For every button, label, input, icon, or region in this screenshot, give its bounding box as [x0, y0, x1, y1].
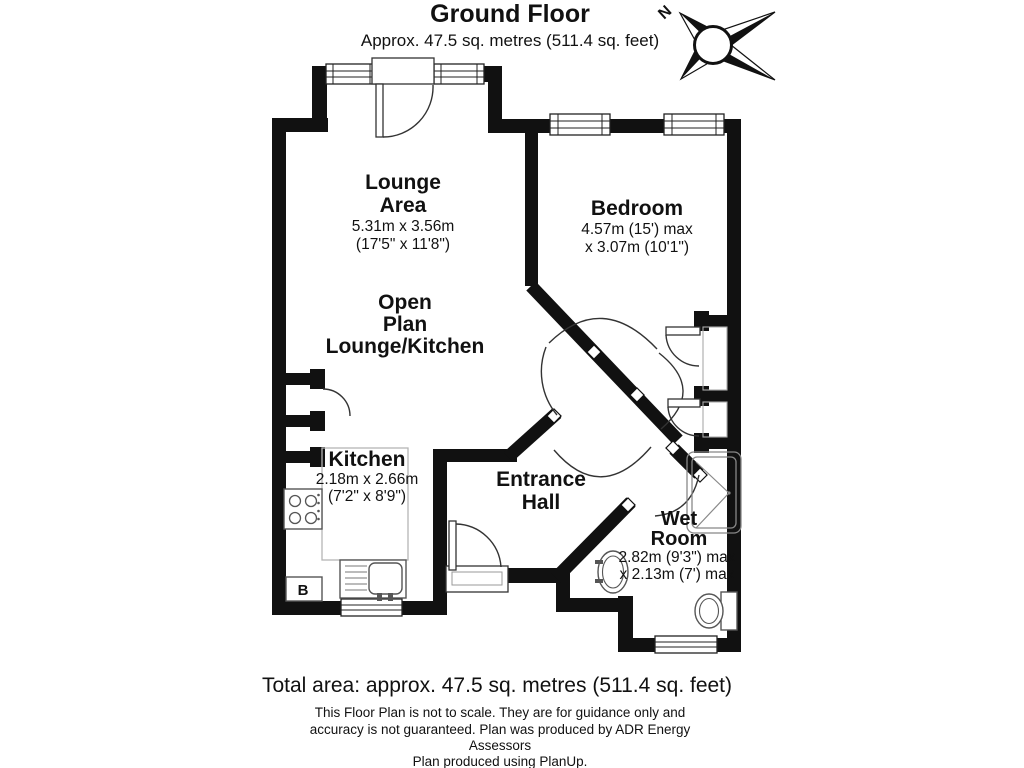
bedroom-window-right: [664, 114, 724, 135]
bedroom-window-left: [550, 114, 610, 135]
hall-label-1: Entrance: [496, 468, 586, 491]
wall-stub: [310, 447, 325, 467]
wall-segment: [525, 133, 538, 286]
lounge-window-right: [434, 64, 484, 84]
disclaimer-line-4: Plan produced using PlanUp.: [413, 754, 588, 768]
wall-segment: [272, 118, 286, 615]
cupboard-upper-leaf: [666, 327, 700, 335]
kitchen-window: [341, 599, 402, 616]
kitchen-dims-metric: 2.18m x 2.66m: [316, 471, 419, 488]
cupboard-upper-arc: [666, 335, 699, 366]
wall-stub: [310, 369, 325, 389]
wall-segment: [433, 449, 517, 462]
floor-plan-page: Ground Floor Approx. 47.5 sq. metres (51…: [0, 0, 1024, 768]
patio-door-leaf: [376, 84, 383, 137]
disclaimer-line-1: This Floor Plan is not to scale. They ar…: [315, 705, 685, 720]
wetroom-dims-1: 2.82m (9'3") max: [619, 549, 736, 566]
boiler-label: B: [298, 582, 309, 599]
wall-diagonal-lounge: [508, 413, 557, 457]
total-area: Total area: approx. 47.5 sq. metres (511…: [262, 674, 732, 697]
wetroom-label-1: Wet: [661, 508, 698, 530]
lounge-door-arc: [541, 347, 557, 415]
bedroom-label: Bedroom: [591, 197, 683, 220]
openplan-label-2: Plan: [383, 313, 427, 336]
compass-north-label: N: [655, 3, 675, 23]
cupboard-lower-leaf: [668, 399, 700, 407]
patio-door-arc: [383, 85, 433, 137]
wall-stub: [310, 411, 325, 431]
boiler: B: [286, 577, 322, 601]
cupboard-upper: [703, 327, 727, 390]
wall-segment: [433, 452, 447, 615]
left-cupboard-door-arc: [323, 389, 350, 416]
front-door-leaf: [449, 521, 456, 570]
compass-rose: N: [655, 3, 775, 80]
hall-label-2: Hall: [522, 491, 561, 514]
lounge-label-2: Area: [380, 194, 427, 217]
compass-circle: [695, 27, 732, 64]
cupboard-lower: [703, 402, 727, 437]
openplan-label-1: Open: [378, 291, 432, 314]
disclaimer-line-3: Assessors: [469, 738, 532, 753]
toilet: [695, 592, 737, 630]
wetroom-label-2: Room: [651, 528, 708, 550]
openplan-label-3: Lounge/Kitchen: [326, 335, 485, 358]
lounge-dims-metric: 5.31m x 3.56m: [352, 218, 455, 235]
disclaimer-line-2: accuracy is not guaranteed. Plan was pro…: [310, 722, 691, 737]
wall-segment: [312, 66, 327, 126]
lounge-window-left: [326, 64, 377, 84]
floor-plan: Ground Floor Approx. 47.5 sq. metres (51…: [0, 0, 1024, 768]
wetroom-window: [655, 636, 717, 653]
lounge-label: Lounge: [365, 171, 441, 194]
page-title: Ground Floor: [430, 0, 590, 28]
footer: Total area: approx. 47.5 sq. metres (511…: [262, 674, 732, 768]
patio-door-frame: [372, 58, 434, 84]
page-subtitle: Approx. 47.5 sq. metres (511.4 sq. feet): [361, 31, 659, 50]
bedroom-dims-1: 4.57m (15') max: [581, 221, 693, 238]
kitchen-label: Kitchen: [328, 448, 405, 471]
sink: [340, 560, 406, 601]
bedroom-dims-2: x 3.07m (10'1"): [585, 239, 689, 256]
hob: [284, 489, 322, 529]
kitchen-dims-imperial: (7'2" x 8'9"): [328, 488, 406, 505]
lounge-dims-imperial: (17'5" x 11'8"): [356, 236, 450, 253]
front-door-arc: [456, 524, 501, 567]
wetroom-dims-2: x 2.13m (7') max: [620, 566, 735, 583]
